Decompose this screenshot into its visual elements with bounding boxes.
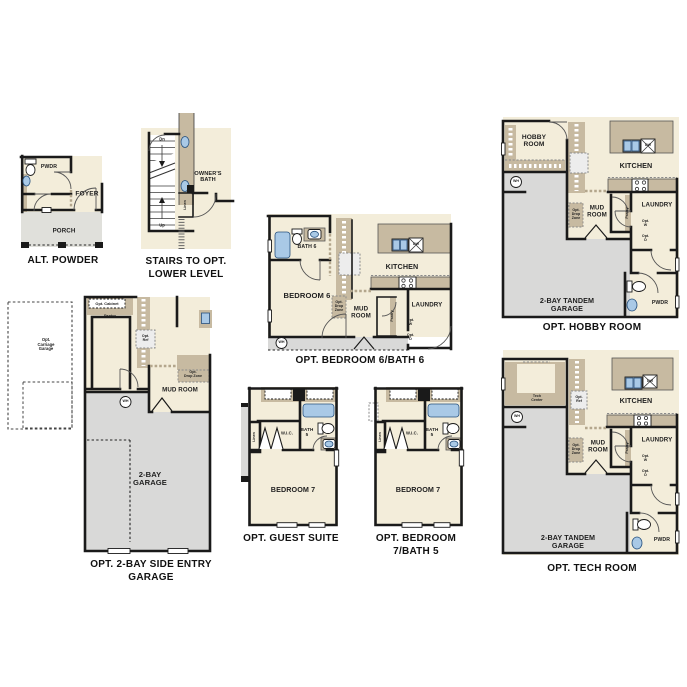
plan-alt-powder: PWDR FOYER PORCH ALT. POWDER bbox=[18, 150, 108, 268]
opt-ref-label: Opt. Ref bbox=[575, 396, 582, 404]
bedroom6-drawing: BATH 6 BEDROOM 6 KITCHEN MUD ROOM LAUNDR… bbox=[266, 210, 454, 352]
opt-washer-label: Opt. W bbox=[642, 220, 649, 228]
plan-caption: OPT. 2-BAY SIDE ENTRY GARAGE bbox=[6, 559, 222, 584]
opt-dryer-label: Opt. D bbox=[407, 334, 414, 342]
window bbox=[502, 143, 506, 155]
dishwasher-label: DW bbox=[413, 243, 419, 247]
plan-bedroom7-bath5: Linen W.I.C. BATH 5 BEDROOM 7 OPT. BEDRO… bbox=[366, 386, 466, 558]
sink-icon bbox=[202, 313, 210, 324]
plan-caption: OPT. GUEST SUITE bbox=[241, 533, 341, 546]
water-heater-label: WH bbox=[123, 400, 129, 404]
window bbox=[676, 531, 680, 543]
room-label-foyer: FOYER bbox=[75, 190, 98, 197]
toilet-icon bbox=[318, 423, 334, 434]
room-label-laundry: LAUNDRY bbox=[412, 303, 443, 310]
room-label-mud-room: MUD ROOM bbox=[351, 306, 371, 319]
opt-ref-label: Opt. Ref bbox=[142, 335, 149, 343]
side-garage-drawing: Opt. Cabinet Pantry Opt. Ref Opt. Carria… bbox=[6, 294, 222, 556]
room-label-garage: 2-BAY GARAGE bbox=[133, 471, 167, 487]
closet-label-wic: W.I.C. bbox=[406, 432, 418, 437]
sink-icon bbox=[181, 137, 189, 148]
opt-ref-box bbox=[339, 253, 360, 275]
closet-label-linen: Linen bbox=[184, 200, 188, 210]
room-label-bedroom6: BEDROOM 6 bbox=[284, 292, 331, 300]
room-label-kitchen: KITCHEN bbox=[386, 263, 419, 271]
hobby-drawing: HOBBY ROOM KITCHEN MUD ROOM LAUNDRY PWDR… bbox=[501, 115, 683, 319]
room-label-mud-room: MUD ROOM bbox=[162, 388, 198, 395]
opt-ref-box bbox=[570, 153, 588, 173]
opt-drop-zone-label: Opt. Drop Zone bbox=[184, 371, 202, 379]
opt-carriage-garage-label: Opt. Carriage Garage bbox=[38, 338, 55, 352]
window bbox=[459, 450, 463, 466]
toilet-icon bbox=[25, 159, 36, 176]
opt-washer-label: Opt. W bbox=[407, 319, 414, 327]
dishwasher-label: DW bbox=[647, 380, 653, 384]
window bbox=[277, 523, 297, 528]
room-label-laundry: LAUNDRY bbox=[642, 203, 673, 210]
window bbox=[434, 523, 450, 528]
tech-center-label: Tech Center bbox=[531, 395, 542, 403]
sink-icon bbox=[392, 239, 408, 251]
opt-dryer-label: Opt. D bbox=[642, 470, 649, 478]
water-heater-label: WH bbox=[514, 415, 520, 419]
window bbox=[309, 523, 325, 528]
sink-icon bbox=[623, 140, 640, 152]
plan-stairs-lower-level: Dn Up Linen OWNER'S BATH STAIRS TO OPT. … bbox=[137, 113, 235, 281]
dishwasher-label: DW bbox=[645, 144, 651, 148]
plan-hobby-room: HOBBY ROOM KITCHEN MUD ROOM LAUNDRY PWDR… bbox=[501, 115, 683, 335]
carriage-garage-option bbox=[8, 302, 72, 429]
room-label-mud-room: MUD ROOM bbox=[588, 440, 608, 453]
window bbox=[334, 450, 338, 466]
window bbox=[676, 258, 680, 271]
plan-tech-room: Tech Center KITCHEN MUD ROOM LAUNDRY PWD… bbox=[501, 348, 683, 576]
room-label-hobby: HOBBY ROOM bbox=[522, 134, 546, 148]
stairs-drawing: Dn Up Linen OWNER'S BATH bbox=[137, 113, 235, 253]
room-label-bedroom7: BEDROOM 7 bbox=[396, 486, 440, 494]
tech-drawing: Tech Center KITCHEN MUD ROOM LAUNDRY PWD… bbox=[501, 348, 683, 560]
bedroom7-drawing: Linen W.I.C. BATH 5 BEDROOM 7 bbox=[366, 386, 466, 530]
room-label-bath6: BATH 6 bbox=[298, 245, 317, 251]
closet-label-pantry: Pantry bbox=[104, 313, 116, 317]
plan-caption: OPT. TECH ROOM bbox=[501, 563, 683, 576]
closet-label-wic: W.I.C. bbox=[281, 432, 293, 437]
floor-plan-sheet: PWDR FOYER PORCH ALT. POWDER bbox=[0, 0, 687, 687]
garage-door bbox=[168, 549, 188, 554]
plan-side-entry-garage: Opt. Cabinet Pantry Opt. Ref Opt. Carria… bbox=[6, 294, 222, 584]
window bbox=[268, 310, 272, 322]
window bbox=[402, 523, 422, 528]
room-label-mud-room: MUD ROOM bbox=[587, 205, 607, 218]
closet-label-pantry: Pantry bbox=[626, 442, 630, 453]
window bbox=[268, 240, 272, 252]
toilet-icon bbox=[292, 229, 302, 245]
toilet-icon bbox=[443, 423, 459, 434]
kitchen-island bbox=[612, 358, 673, 390]
sink-icon bbox=[627, 299, 637, 311]
tub-icon bbox=[303, 404, 334, 417]
threshold bbox=[42, 208, 51, 213]
opt-drop-zone-label: Opt. Drop Zone bbox=[572, 444, 581, 456]
stove-icon bbox=[634, 415, 651, 427]
plan-caption: STAIRS TO OPT. LOWER LEVEL bbox=[137, 256, 235, 281]
vanity-sink-icon bbox=[446, 438, 462, 450]
plan-guest-suite: Linen W.I.C. BATH 5 BEDROOM 7 OPT. GUEST… bbox=[241, 386, 341, 546]
room-label-bedroom7: BEDROOM 7 bbox=[271, 486, 315, 494]
plan-caption: OPT. HOBBY ROOM bbox=[501, 322, 683, 335]
room-label-bath5: BATH 5 bbox=[426, 428, 439, 438]
opt-drop-zone-label: Opt. Drop Zone bbox=[335, 301, 344, 313]
sink-icon bbox=[23, 176, 30, 186]
opt-cabinet-label: Opt. Cabinet bbox=[95, 301, 118, 305]
tub-icon bbox=[275, 232, 290, 258]
room-label-pwdr: PWDR bbox=[41, 165, 57, 171]
guest-suite-drawing: Linen W.I.C. BATH 5 BEDROOM 7 bbox=[241, 386, 341, 530]
room-label-laundry: LAUNDRY bbox=[642, 438, 673, 445]
toilet-icon bbox=[627, 281, 646, 292]
room-label-garage: 2-BAY TANDEM GARAGE bbox=[541, 534, 595, 550]
room-label-owners-bath: OWNER'S BATH bbox=[194, 171, 221, 183]
garage-door bbox=[108, 549, 130, 554]
room-label-kitchen: KITCHEN bbox=[620, 162, 653, 170]
stair-label-up: Up bbox=[159, 224, 165, 229]
room-label-porch: PORCH bbox=[53, 229, 76, 236]
window bbox=[676, 493, 680, 505]
stair-label-dn: Dn bbox=[159, 138, 165, 143]
window bbox=[676, 296, 680, 308]
stove-icon bbox=[399, 277, 416, 289]
closet-label-linen: Linen bbox=[253, 432, 257, 442]
water-heater-label: WH bbox=[513, 180, 519, 184]
opt-drop-zone-label: Opt. Drop Zone bbox=[572, 209, 581, 221]
window bbox=[502, 378, 506, 390]
plan-caption: OPT. BEDROOM 6/BATH 6 bbox=[266, 355, 454, 368]
toilet-icon bbox=[633, 519, 651, 530]
closet-label-linen: Linen bbox=[379, 432, 383, 442]
water-heater-label: WH bbox=[279, 341, 285, 345]
room-label-kitchen: KITCHEN bbox=[620, 397, 653, 405]
plan-caption: OPT. BEDROOM 7/BATH 5 bbox=[366, 533, 466, 558]
room-label-pwdr: PWDR bbox=[654, 538, 670, 544]
room-label-garage: 2-BAY TANDEM GARAGE bbox=[540, 297, 594, 313]
tub-icon bbox=[428, 404, 459, 417]
plan-caption: ALT. POWDER bbox=[18, 255, 108, 268]
room-label-pwdr: PWDR bbox=[652, 301, 668, 307]
sink-icon bbox=[625, 377, 642, 389]
stairs-icon bbox=[149, 135, 175, 231]
opt-washer-label: Opt. W bbox=[642, 455, 649, 463]
closet-label-pantry: Pantry bbox=[391, 310, 395, 321]
vanity-sink-icon bbox=[304, 228, 325, 241]
alt-powder-drawing: PWDR FOYER PORCH bbox=[18, 150, 108, 252]
opt-dryer-label: Opt. D bbox=[642, 235, 649, 243]
sink-icon bbox=[632, 537, 642, 549]
vanity-sink-icon bbox=[321, 438, 337, 450]
plan-bedroom6-bath6: BATH 6 BEDROOM 6 KITCHEN MUD ROOM LAUNDR… bbox=[266, 210, 454, 368]
stove-icon bbox=[632, 179, 648, 192]
room-label-bath5: BATH 5 bbox=[301, 428, 314, 438]
closet-label-pantry: Pantry bbox=[626, 207, 630, 218]
